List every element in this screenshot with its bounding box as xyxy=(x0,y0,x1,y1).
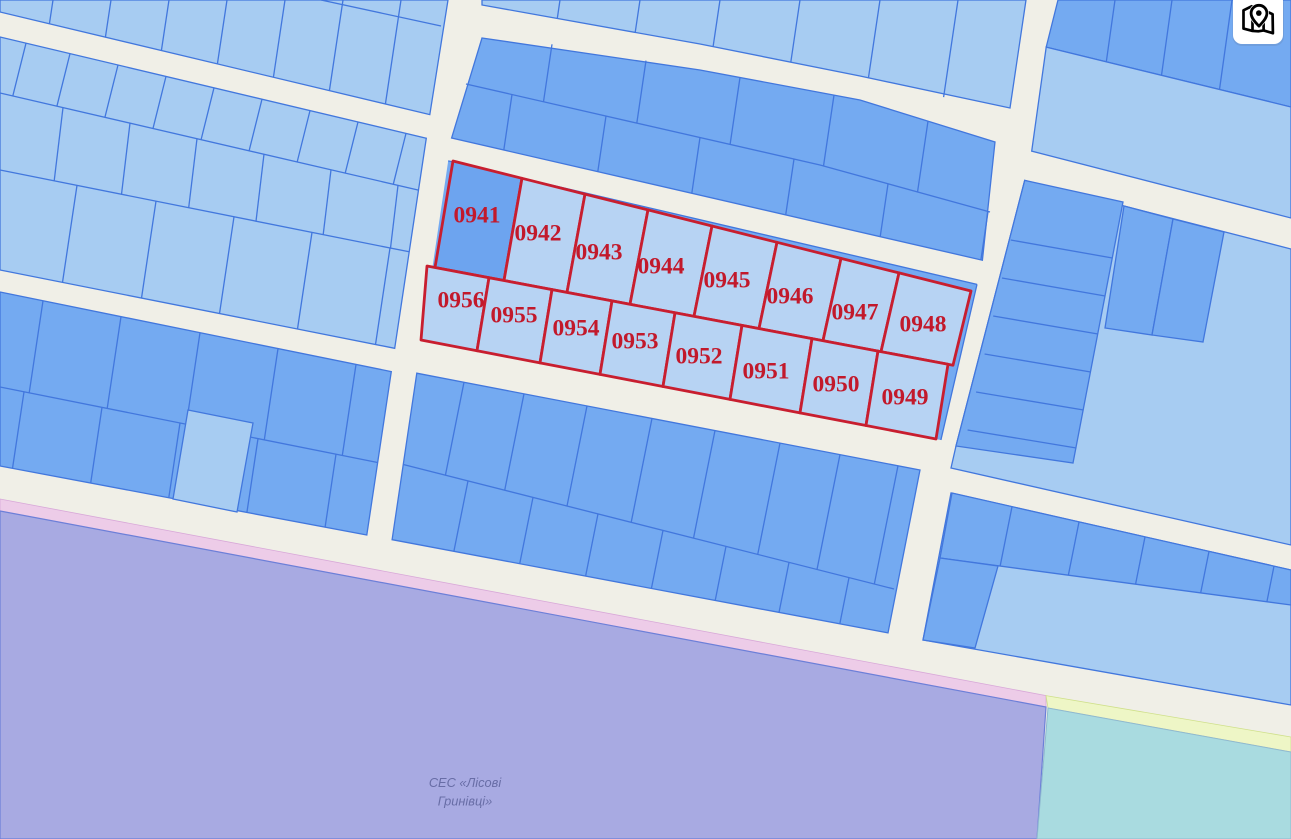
svg-text:0947: 0947 xyxy=(832,300,879,326)
svg-text:Гринівці»: Гринівці» xyxy=(438,794,492,809)
svg-text:0942: 0942 xyxy=(515,221,562,247)
svg-text:0950: 0950 xyxy=(813,372,860,398)
svg-text:0955: 0955 xyxy=(491,303,538,329)
svg-text:0941: 0941 xyxy=(454,203,501,229)
svg-text:0944: 0944 xyxy=(638,254,685,280)
svg-text:0943: 0943 xyxy=(576,240,623,266)
svg-text:0953: 0953 xyxy=(612,329,659,355)
svg-text:0954: 0954 xyxy=(553,316,600,342)
svg-text:0949: 0949 xyxy=(882,385,929,411)
svg-text:СЕС «Лісові: СЕС «Лісові xyxy=(429,775,503,790)
svg-text:0946: 0946 xyxy=(767,284,814,310)
svg-text:0951: 0951 xyxy=(743,359,790,385)
svg-text:0948: 0948 xyxy=(900,312,947,338)
svg-text:0952: 0952 xyxy=(676,344,723,370)
svg-text:0945: 0945 xyxy=(704,268,751,294)
svg-text:0956: 0956 xyxy=(438,288,485,314)
